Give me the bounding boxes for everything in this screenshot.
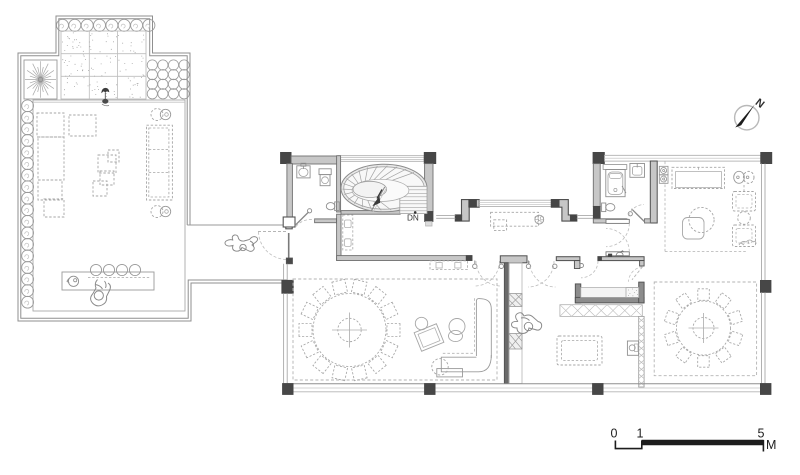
svg-text:M: M	[766, 438, 776, 452]
svg-text:0: 0	[611, 427, 618, 441]
svg-text:DN: DN	[407, 214, 419, 223]
svg-text:1: 1	[637, 427, 644, 441]
svg-text:5: 5	[758, 427, 765, 441]
